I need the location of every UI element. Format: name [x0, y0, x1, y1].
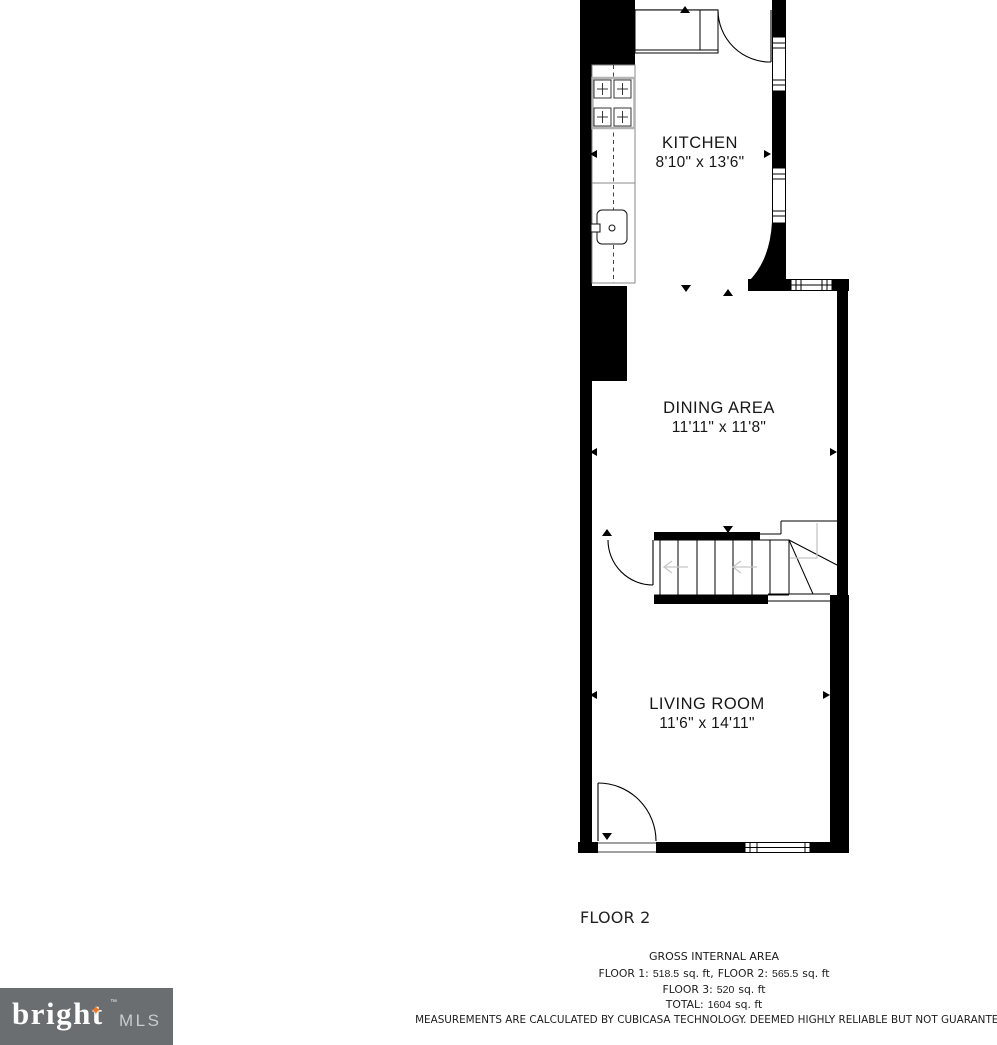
total-unit: sq. ft: [735, 998, 762, 1011]
winder-diagonal-2: [789, 540, 813, 594]
window-kitchen-lower: [773, 168, 786, 223]
door-stairs: [608, 540, 653, 585]
logo-mls-text: MLS: [119, 1011, 161, 1031]
window-living-bottom: [745, 843, 811, 853]
stair-direction-arrows: [664, 523, 817, 573]
wall-stair-top: [654, 532, 760, 540]
door-kitchen-top: [718, 10, 771, 62]
logo-star-icon: ✦: [90, 1002, 102, 1019]
floor-plan-page: KITCHEN 8'10" x 13'6" DINING AREA 11'11"…: [0, 0, 997, 1045]
floor3-unit: sq. ft: [738, 983, 765, 996]
gross-area-title: GROSS INTERNAL AREA: [404, 950, 997, 963]
total-label: TOTAL:: [666, 998, 704, 1011]
floor2-value: 565.5: [772, 968, 798, 980]
wall-bay-right: [832, 279, 849, 291]
area-line-floor-3: FLOOR 3:520sq. ft: [404, 983, 997, 996]
logo-trademark: ™: [110, 999, 117, 1006]
arrow-living-door: [602, 833, 612, 840]
floor3-value: 520: [717, 984, 735, 996]
winder-diagonal-1: [789, 540, 837, 565]
arrow-dining-right: [830, 448, 837, 456]
room-name: LIVING ROOM: [622, 695, 792, 714]
arrow-stair-entry: [723, 526, 733, 533]
window-kitchen-upper: [773, 37, 786, 91]
room-name: KITCHEN: [615, 134, 785, 153]
area-line-total: TOTAL:1604sq. ft: [404, 998, 997, 1011]
floor-plan-graphics: [0, 0, 997, 1045]
room-label-dining-area: DINING AREA 11'11" x 11'8": [634, 399, 804, 437]
wall-kitchen-top-left-block: [580, 0, 635, 67]
area-line-floors-1-2: FLOOR 1:518.5sq. ft,FLOOR 2:565.5sq. ft: [404, 967, 997, 980]
floor1-value: 518.5: [653, 968, 679, 980]
wall-bay-left: [748, 279, 791, 291]
floor1-unit: sq. ft,: [683, 967, 714, 980]
room-dims: 11'11" x 11'8": [634, 418, 804, 437]
arrow-kitchen-bottom: [681, 285, 691, 292]
wall-bottom-mid: [656, 842, 745, 853]
window-dining-bay: [791, 280, 832, 291]
upper-cabinet: [635, 10, 718, 53]
room-label-living-room: LIVING ROOM 11'6" x 14'11": [622, 695, 792, 733]
door-living-bottom: [598, 783, 656, 841]
disclaimer: MEASUREMENTS ARE CALCULATED BY CUBICASA …: [404, 1014, 997, 1026]
floor-title: FLOOR 2: [580, 908, 651, 927]
wall-left: [580, 0, 592, 853]
wall-kitchen-right-upper: [772, 0, 786, 37]
room-dims: 8'10" x 13'6": [615, 153, 785, 172]
arrow-dining-top: [723, 289, 733, 296]
floor3-label: FLOOR 3:: [663, 983, 713, 996]
wall-bottom-left: [578, 842, 598, 853]
brightmls-logo: bright ✦ ™ MLS: [0, 988, 173, 1045]
floor2-unit: sq. ft: [802, 967, 829, 980]
wall-bottom-right: [811, 842, 849, 853]
room-name: DINING AREA: [634, 399, 804, 418]
total-value: 1604: [708, 999, 731, 1011]
stove: [593, 78, 635, 128]
wall-dining-right: [837, 291, 848, 595]
room-dims: 11'6" x 14'11": [622, 714, 792, 733]
wall-chimney-breast: [580, 286, 627, 381]
arrow-living-right: [823, 691, 830, 699]
wall-kitchen-curved-corner: [750, 222, 786, 280]
wall-stair-bottom: [654, 595, 768, 604]
arrow-stair-door: [602, 529, 612, 536]
room-label-kitchen: KITCHEN 8'10" x 13'6": [615, 134, 785, 172]
floor1-label: FLOOR 1:: [599, 967, 649, 980]
floor2-label: FLOOR 2:: [718, 967, 768, 980]
wall-living-right: [830, 595, 849, 853]
